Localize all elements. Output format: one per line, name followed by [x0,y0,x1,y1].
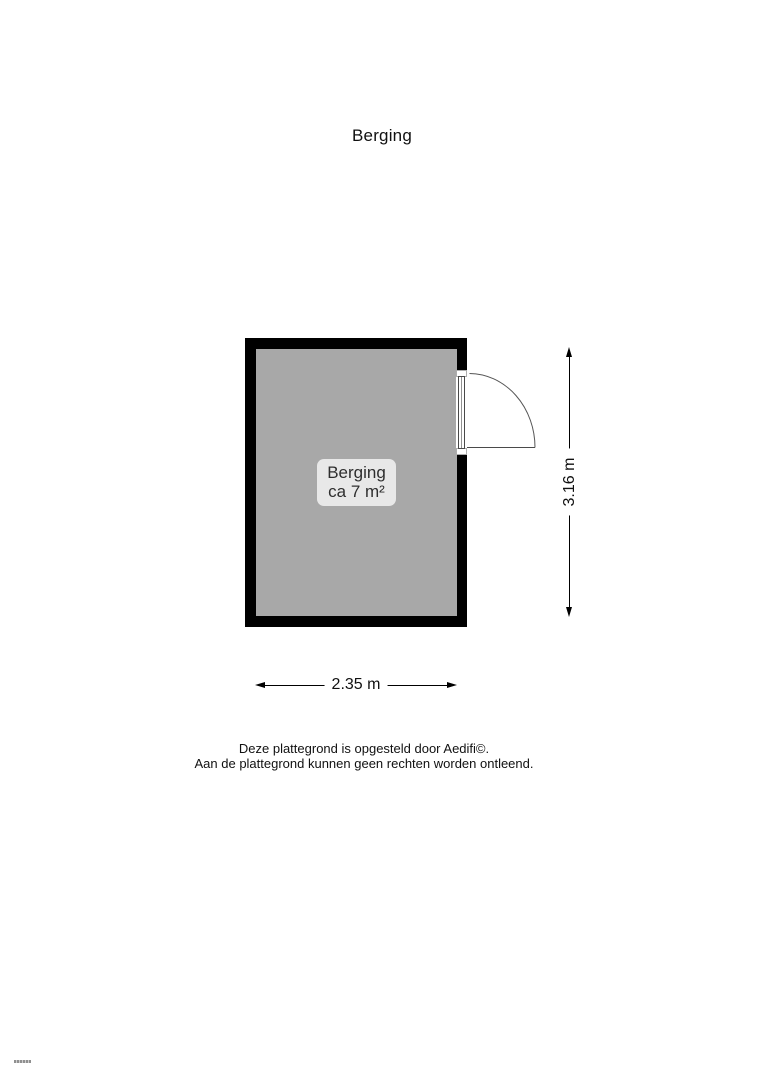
door-icon [455,368,540,458]
room-label: Berging ca 7 m² [317,459,396,506]
disclaimer-line-1: Deze plattegrond is opgesteld door Aedif… [0,742,728,757]
room-berging: Berging ca 7 m² [245,338,467,627]
floorplan-page: Berging Berging ca 7 m² 3.16 m 2.35 m D [0,0,764,1080]
width-dimension: 2.35 m [255,676,457,694]
width-dimension-label: 2.35 m [325,676,388,694]
room-name: Berging [327,463,386,482]
height-dimension: 3.16 m [563,347,576,617]
page-title: Berging [0,126,764,146]
arrow-down-icon [566,607,572,617]
height-dimension-label: 3.16 m [561,449,579,516]
fine-print-mark [14,1060,31,1063]
disclaimer: Deze plattegrond is opgesteld door Aedif… [0,742,728,771]
room-area: ca 7 m² [327,482,386,501]
arrow-right-icon [447,682,457,688]
disclaimer-line-2: Aan de plattegrond kunnen geen rechten w… [0,757,728,772]
